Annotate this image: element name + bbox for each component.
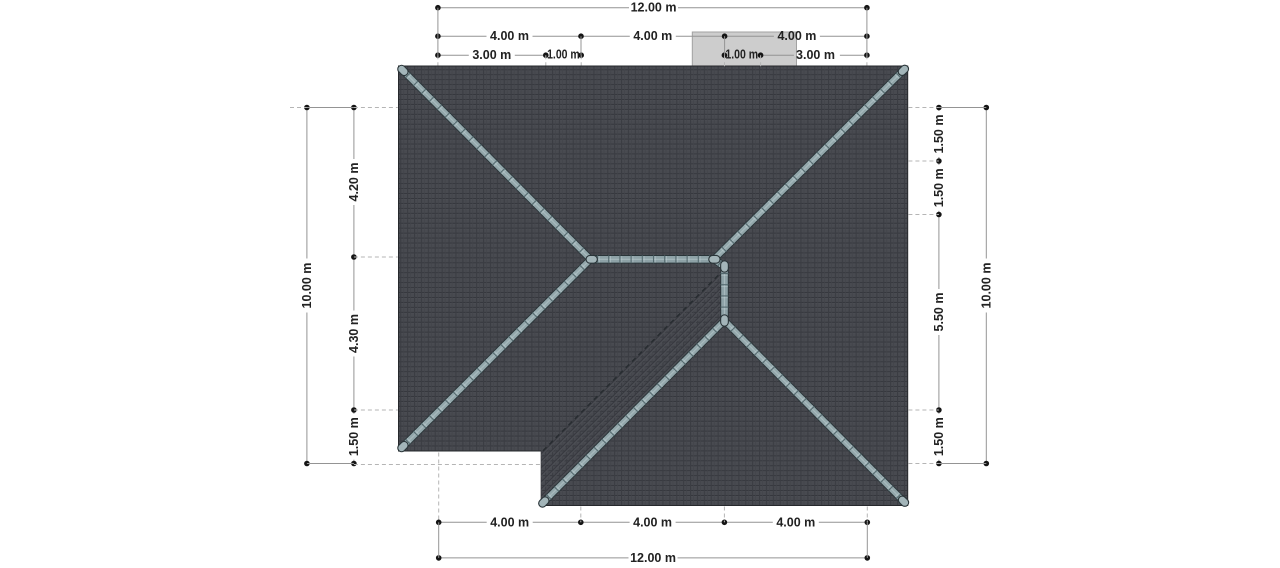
svg-text:1.00 m: 1.00 m bbox=[547, 49, 580, 62]
svg-text:12.00 m: 12.00 m bbox=[631, 1, 677, 15]
svg-text:10.00 m: 10.00 m bbox=[300, 263, 314, 309]
svg-text:1.50 m: 1.50 m bbox=[347, 417, 361, 456]
svg-text:3.00 m: 3.00 m bbox=[472, 48, 511, 62]
svg-text:12.00 m: 12.00 m bbox=[630, 551, 676, 565]
svg-text:4.00 m: 4.00 m bbox=[777, 29, 816, 43]
svg-text:4.00 m: 4.00 m bbox=[776, 515, 815, 529]
svg-text:1.50 m: 1.50 m bbox=[932, 417, 946, 456]
svg-text:4.00 m: 4.00 m bbox=[633, 515, 672, 529]
svg-text:4.00 m: 4.00 m bbox=[490, 515, 529, 529]
svg-text:4.00 m: 4.00 m bbox=[633, 29, 672, 43]
svg-text:4.20 m: 4.20 m bbox=[347, 163, 361, 202]
svg-text:3.00 m: 3.00 m bbox=[796, 48, 835, 62]
svg-text:1.50 m: 1.50 m bbox=[932, 115, 946, 154]
svg-text:4.00 m: 4.00 m bbox=[490, 29, 529, 43]
svg-text:5.50 m: 5.50 m bbox=[932, 293, 946, 332]
svg-text:1.00 m: 1.00 m bbox=[725, 49, 758, 62]
svg-text:4.30 m: 4.30 m bbox=[347, 314, 361, 353]
svg-text:10.00 m: 10.00 m bbox=[979, 263, 993, 309]
svg-text:1.50 m: 1.50 m bbox=[932, 168, 946, 207]
